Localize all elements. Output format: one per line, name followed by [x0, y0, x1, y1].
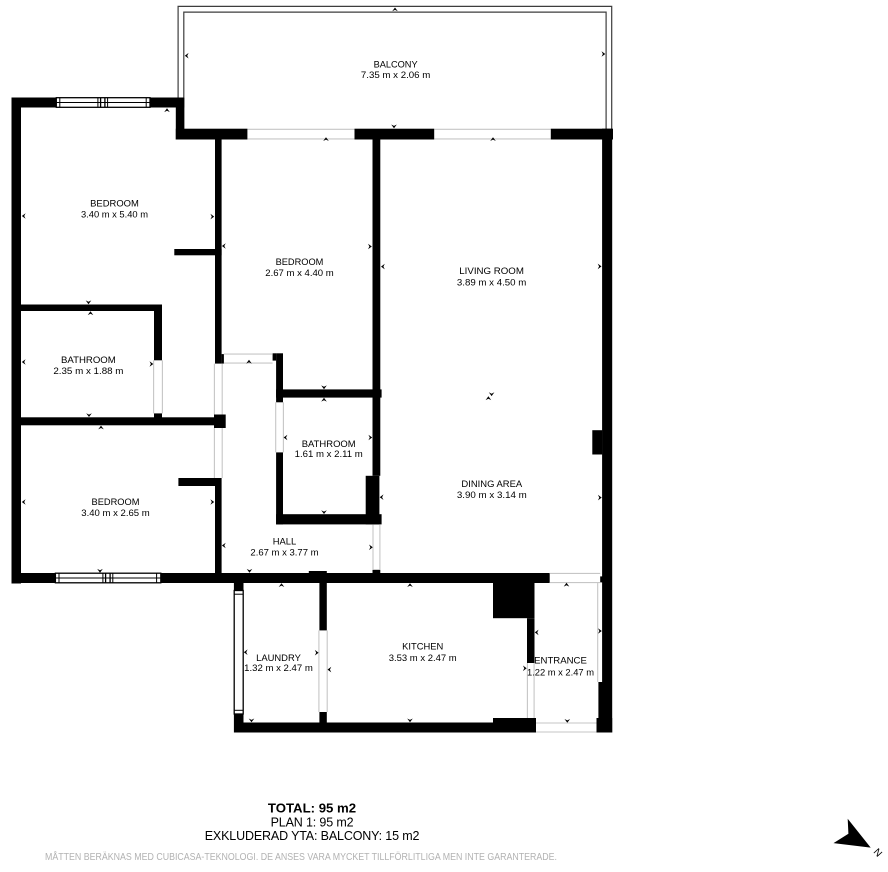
svg-text:BEDROOM: BEDROOM [276, 256, 324, 267]
svg-text:3.90 m x 3.14 m: 3.90 m x 3.14 m [457, 489, 527, 500]
svg-text:3.89 m x 4.50 m: 3.89 m x 4.50 m [457, 277, 527, 288]
svg-text:EXKLUDERAD YTA: BALCONY: 15 m2: EXKLUDERAD YTA: BALCONY: 15 m2 [205, 829, 420, 843]
svg-text:3.53 m x 2.47 m: 3.53 m x 2.47 m [389, 652, 457, 663]
svg-text:LIVING ROOM: LIVING ROOM [459, 265, 524, 276]
svg-text:BEDROOM: BEDROOM [90, 198, 139, 209]
svg-text:TOTAL: 95 m2: TOTAL: 95 m2 [268, 801, 356, 816]
svg-text:2.35 m x 1.88 m: 2.35 m x 1.88 m [53, 365, 123, 376]
svg-text:DINING AREA: DINING AREA [461, 478, 523, 489]
svg-text:1.22 m x 2.47 m: 1.22 m x 2.47 m [527, 667, 594, 678]
svg-text:BEDROOM: BEDROOM [92, 496, 140, 507]
svg-text:ENTRANCE: ENTRANCE [534, 655, 587, 666]
svg-text:MÅTTEN BERÄKNAS MED CUBICASA-T: MÅTTEN BERÄKNAS MED CUBICASA-TEKNOLOGI. … [45, 852, 557, 863]
svg-text:PLAN 1: 95 m2: PLAN 1: 95 m2 [271, 815, 354, 829]
svg-text:HALL: HALL [273, 536, 297, 547]
svg-text:BATHROOM: BATHROOM [61, 354, 116, 365]
svg-text:7.35 m x 2.06 m: 7.35 m x 2.06 m [361, 69, 431, 80]
svg-text:1.61 m x 2.11 m: 1.61 m x 2.11 m [295, 448, 363, 459]
svg-text:KITCHEN: KITCHEN [402, 641, 443, 652]
svg-text:3.40 m x 2.65 m: 3.40 m x 2.65 m [81, 507, 150, 518]
svg-text:1.32 m x 2.47 m: 1.32 m x 2.47 m [244, 662, 313, 673]
svg-text:BALCONY: BALCONY [374, 58, 419, 69]
svg-text:2.67 m x 4.40 m: 2.67 m x 4.40 m [265, 267, 334, 278]
svg-text:3.40 m x 5.40 m: 3.40 m x 5.40 m [81, 208, 148, 219]
svg-text:2.67 m x 3.77 m: 2.67 m x 3.77 m [250, 546, 318, 557]
svg-text:BATHROOM: BATHROOM [302, 438, 356, 449]
